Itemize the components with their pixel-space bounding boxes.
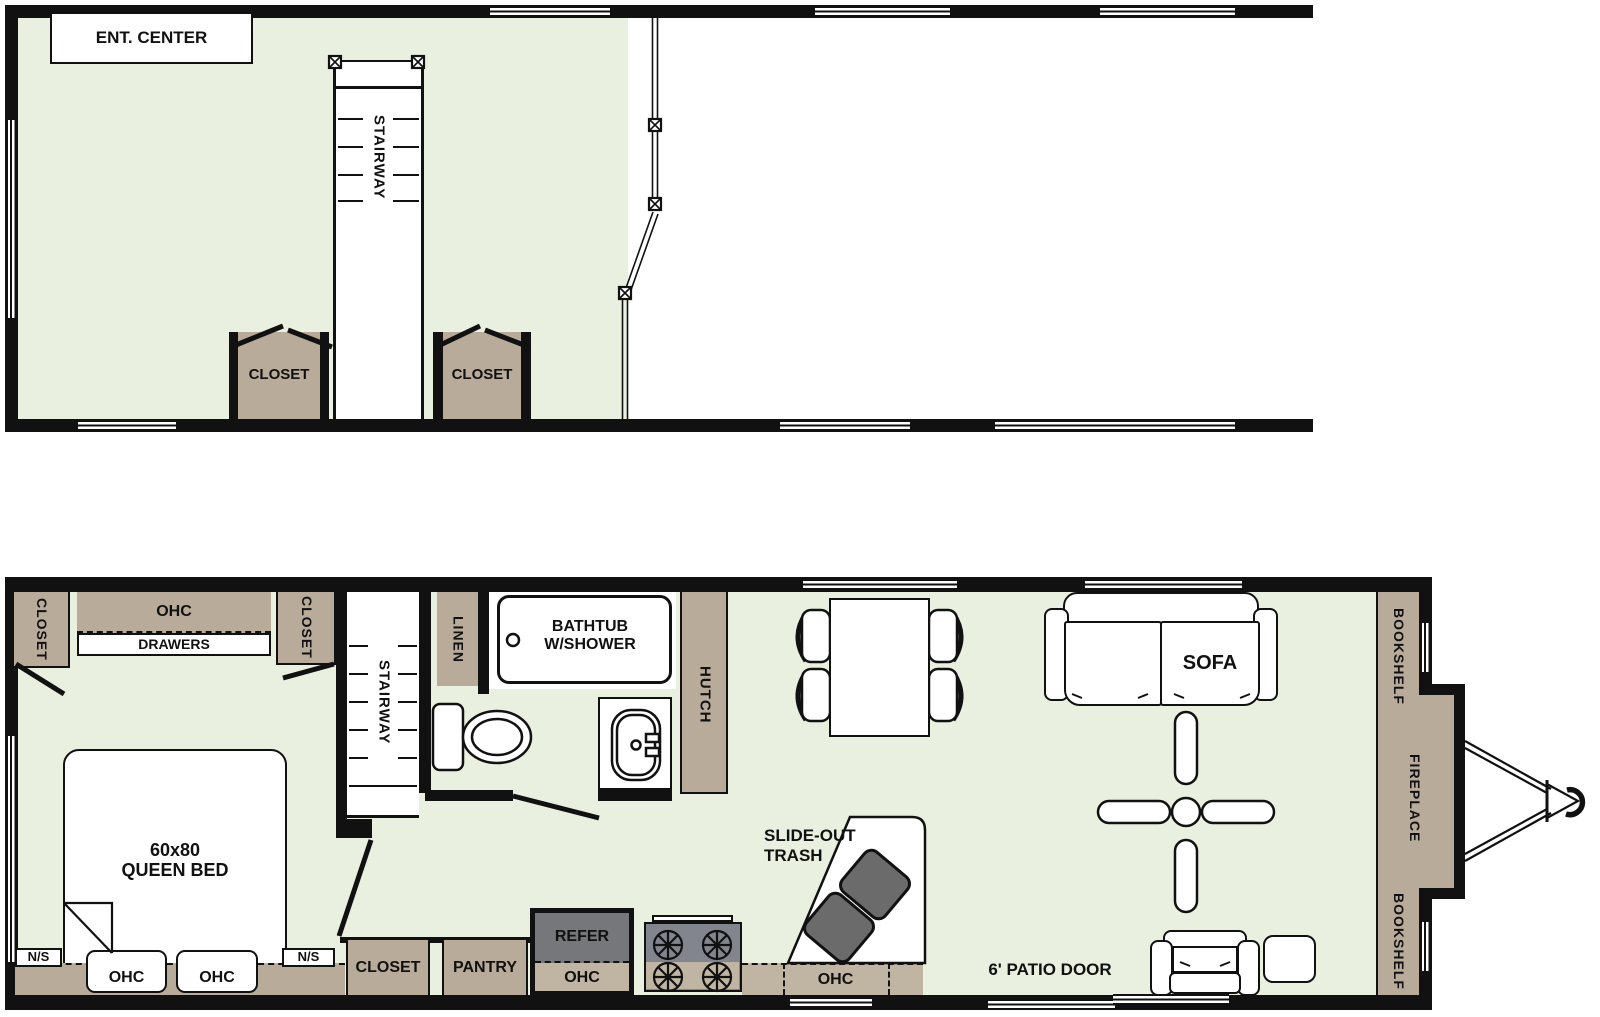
toilet-icon — [433, 704, 531, 770]
main-floor-plan: CLOSET OHC DRAWERS CLOSET 60x80 QUEEN BE… — [0, 0, 1600, 1017]
cushion-marks — [1072, 694, 1250, 966]
bathroom-door-swing — [513, 796, 599, 818]
main-linework — [0, 0, 1600, 1017]
hitch-icon — [1465, 741, 1582, 861]
bedroom-door-swing — [339, 840, 371, 936]
burner-icon — [654, 931, 731, 991]
sink-faucet-icon — [632, 741, 641, 750]
closet-door-swing — [283, 664, 334, 678]
blanket-fold — [64, 903, 112, 953]
closet-door-swing — [16, 664, 64, 694]
floorplan-canvas: ENT. CENTER STAIRWAY CLOSET CLOSET — [0, 0, 1600, 1017]
tub-faucet-icon — [507, 634, 519, 646]
sink-icon — [612, 710, 660, 780]
